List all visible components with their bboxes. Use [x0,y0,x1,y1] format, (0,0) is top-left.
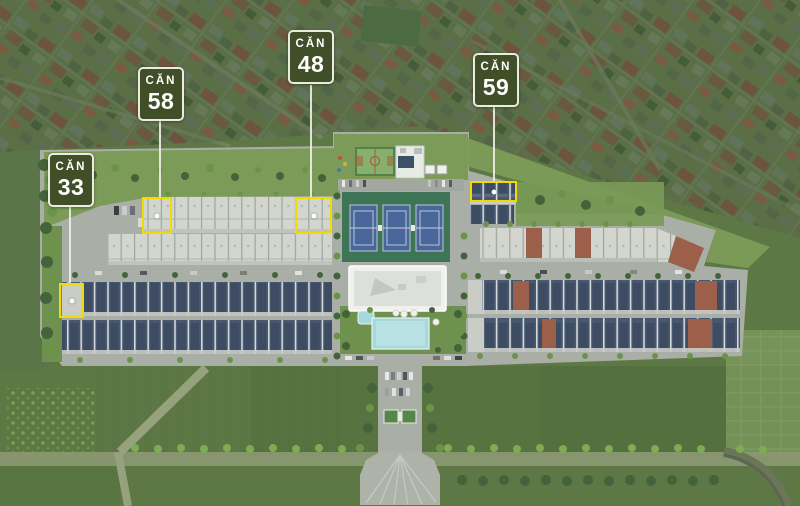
marker-number: 58 [140,89,182,113]
marker-number: 33 [50,175,92,199]
townhouse-row-a [142,197,332,233]
townhouse-row-b [108,234,332,265]
aerial-masterplan: CĂN 33 CĂN 58 CĂN 48 CĂN 59 [0,0,800,506]
marker-number: 59 [475,75,517,99]
tennis-courts [342,192,450,262]
unit-48-marker[interactable]: CĂN 48 [288,30,334,84]
marker-number: 48 [290,52,332,76]
unit-58-marker[interactable]: CĂN 58 [138,67,184,121]
townhouse-row-c [62,282,332,316]
unit-59-row [470,183,516,202]
unit-33-marker[interactable]: CĂN 33 [48,153,94,207]
marker-prefix: CĂN [50,160,92,175]
clubhouse-building [396,146,424,178]
unit-59-marker[interactable]: CĂN 59 [473,53,519,107]
marker-prefix: CĂN [475,60,517,75]
amenity-parking [338,179,464,191]
marker-prefix: CĂN [140,74,182,89]
townhouse-row-e [480,228,656,262]
townhouse-row-d [62,320,332,354]
event-lawn-building [349,266,446,311]
marker-prefix: CĂN [290,37,332,52]
unit-33-roof [62,284,84,316]
aerial-scene [0,0,800,506]
basketball-court [356,148,394,175]
